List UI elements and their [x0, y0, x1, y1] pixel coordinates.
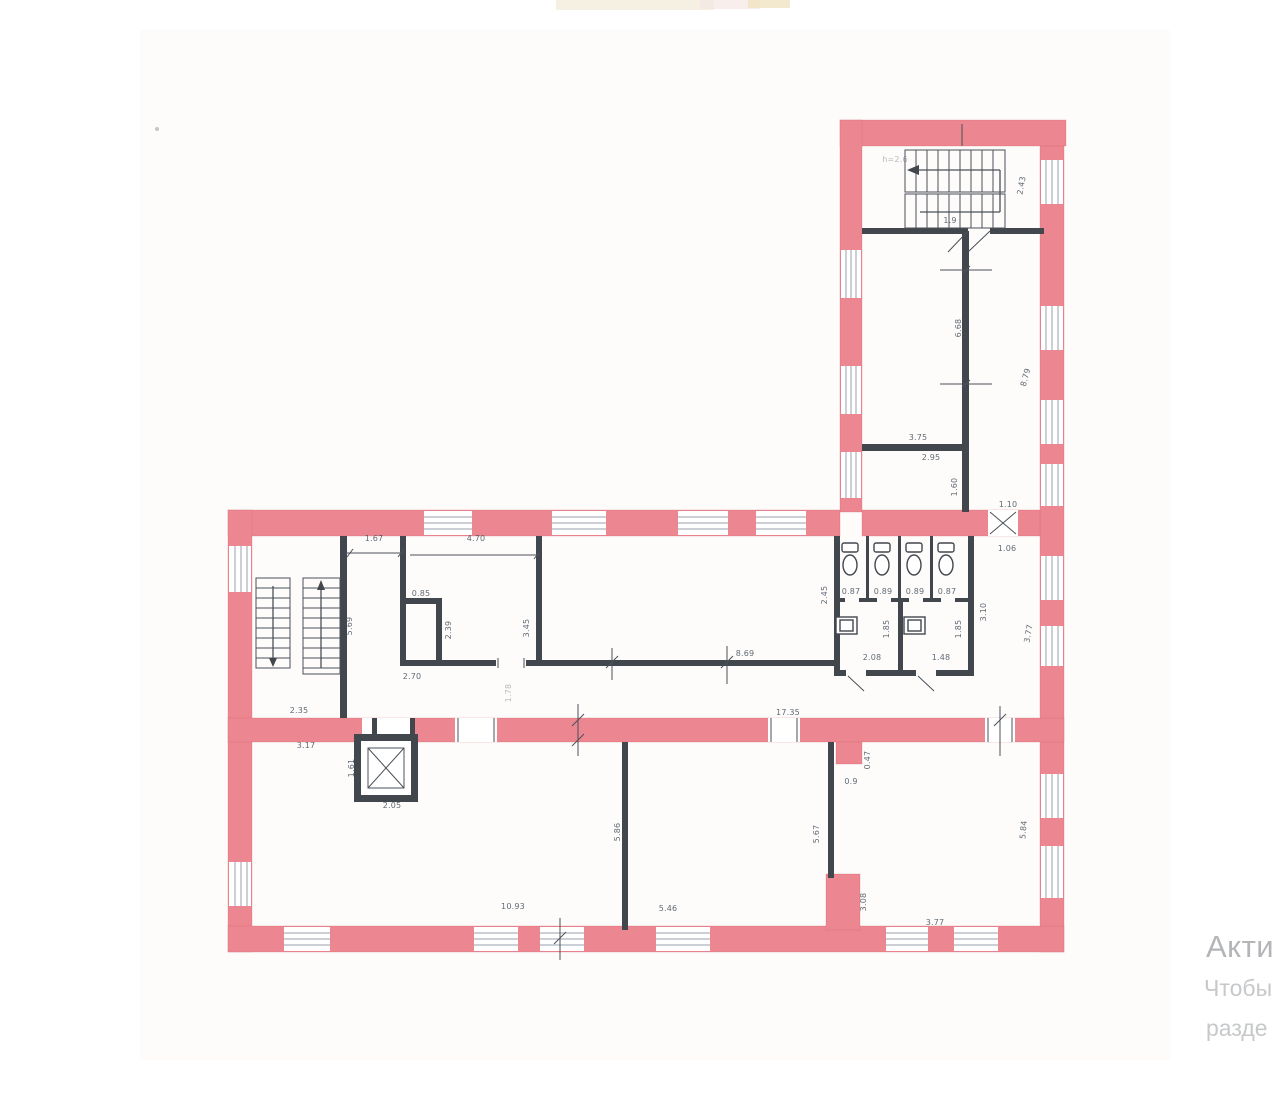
- window: [841, 366, 861, 414]
- scan-smudge: [748, 0, 790, 8]
- dimension-label: 0.85: [412, 589, 431, 598]
- watermark-line-2: Чтобы: [1204, 977, 1272, 1000]
- dimension-label: 4.70: [467, 534, 486, 543]
- window: [954, 927, 998, 951]
- wc-icon: [938, 543, 954, 575]
- dimension-label: 5.86: [613, 823, 622, 842]
- dimension-label: 3.17: [297, 741, 316, 750]
- dimension-label: 3.45: [522, 619, 531, 638]
- window: [229, 862, 251, 906]
- dimension-label: 2.05: [383, 801, 402, 810]
- dimension-label: 2.35: [290, 706, 309, 715]
- dimension-label: 0.89: [874, 587, 893, 596]
- elevator-shaft: [358, 738, 415, 799]
- window: [756, 511, 806, 535]
- scan-smudge: [556, 0, 714, 10]
- dimension-label: 3.75: [909, 433, 928, 442]
- dimension-label: 3.10: [979, 603, 988, 622]
- dimension-label: 3.08: [859, 893, 868, 912]
- window: [1041, 160, 1063, 204]
- window: [841, 452, 861, 498]
- dimension-label: 8.69: [736, 649, 755, 658]
- floor-plan-drawing: 1.674.705.690.852.392.703.451.788.692.45…: [0, 0, 1280, 1099]
- window: [424, 511, 472, 535]
- wc-icon: [842, 543, 858, 575]
- dimension-label: 6.68: [954, 319, 963, 338]
- dimension-label: 5.46: [659, 904, 678, 913]
- window: [1041, 400, 1063, 444]
- window: [474, 927, 518, 951]
- dimension-label: 1.9: [943, 216, 956, 225]
- floor-plan-page: 1.674.705.690.852.392.703.451.788.692.45…: [0, 0, 1280, 1099]
- window: [540, 927, 584, 951]
- dimension-label: 1.78: [504, 684, 513, 703]
- dimension-label: 0.89: [906, 587, 925, 596]
- dimension-label: 3.77: [926, 918, 945, 927]
- window: [1041, 774, 1063, 818]
- window: [678, 511, 728, 535]
- wc-icon: [874, 543, 890, 575]
- window: [1041, 306, 1063, 350]
- window: [656, 927, 710, 951]
- dimension-label: 1.48: [932, 653, 951, 662]
- dimension-label: 17.35: [776, 708, 800, 717]
- sink-icon: [904, 617, 925, 634]
- dimension-label: 1.61: [347, 759, 356, 778]
- watermark-line-1: Акти: [1206, 931, 1274, 962]
- dimension-label: 2.70: [403, 672, 422, 681]
- watermark-line-3: разде: [1206, 1017, 1268, 1040]
- dimension-label: 2.95: [922, 453, 941, 462]
- dimension-label: 1.85: [882, 620, 891, 639]
- dimension-label: 0.87: [938, 587, 957, 596]
- dimension-label: 1.06: [998, 544, 1017, 553]
- window: [284, 927, 330, 951]
- dimension-label: 1.10: [999, 500, 1018, 509]
- scan-speck: [155, 127, 159, 131]
- dimension-label: 2.45: [820, 586, 829, 605]
- window: [886, 927, 928, 951]
- dimension-label: 1.67: [365, 534, 384, 543]
- dimension-label: 1.85: [954, 620, 963, 639]
- window: [1041, 464, 1063, 506]
- dimension-label: 0.87: [842, 587, 861, 596]
- dimension-label: 0.47: [863, 751, 872, 770]
- window: [1041, 846, 1063, 898]
- dimension-label: 2.39: [444, 621, 453, 640]
- dimension-label: 1.60: [950, 478, 959, 497]
- window: [229, 546, 251, 592]
- dimension-label: 2.08: [863, 653, 882, 662]
- window: [841, 250, 861, 298]
- window: [1041, 556, 1063, 600]
- window: [552, 511, 606, 535]
- dimension-label: 5.67: [812, 825, 821, 844]
- dimension-label: h=2.6: [882, 155, 908, 164]
- dimension-label: 0.9: [844, 777, 857, 786]
- sink-icon: [836, 617, 857, 634]
- window: [1041, 626, 1063, 666]
- dimension-label: 10.93: [501, 902, 525, 911]
- dimension-label: 5.69: [345, 617, 354, 636]
- wc-icon: [906, 543, 922, 575]
- dimension-label: 5.84: [1018, 820, 1029, 839]
